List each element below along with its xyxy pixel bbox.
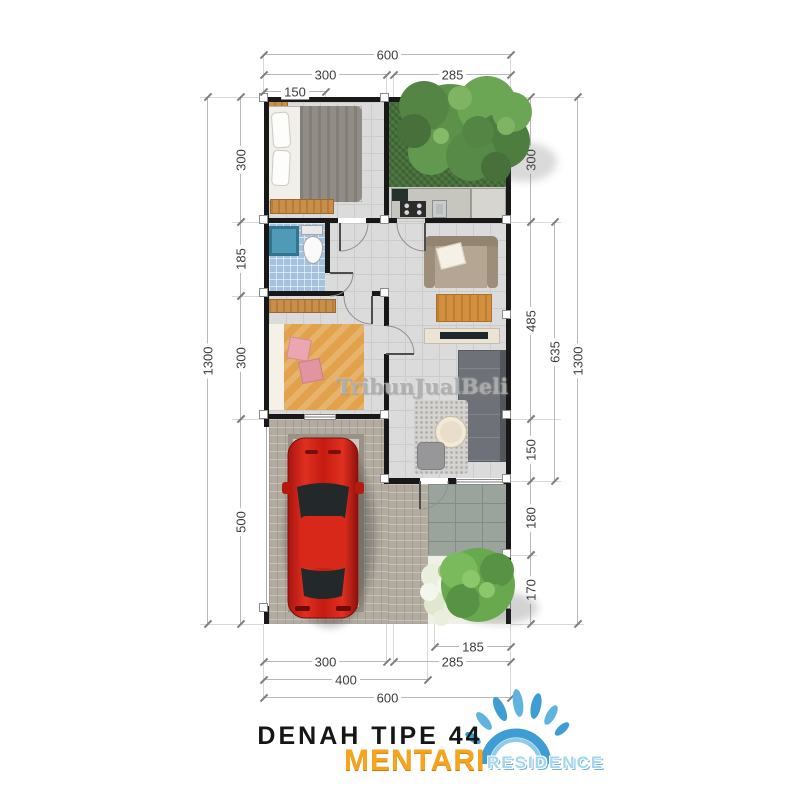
pillow-pink (286, 336, 311, 361)
wall-post (502, 474, 511, 483)
kitchen-sink (432, 200, 447, 218)
wall-post (502, 600, 511, 609)
dim-right-kitchen: 300 (530, 97, 531, 222)
dim-label: 285 (439, 655, 467, 670)
extension-line (393, 624, 394, 661)
cooktop (400, 201, 426, 217)
dim-label: 300 (524, 146, 539, 174)
sofa-arm (424, 246, 435, 288)
extension-line (511, 97, 584, 98)
toilet-tank (301, 225, 323, 235)
dim-left-bedroom2: 300 (240, 296, 241, 419)
dim-label: 185 (459, 640, 487, 655)
accent-chair (417, 442, 445, 470)
dim-top-window: 150 (264, 91, 326, 92)
watermark: TribunJualBeli (336, 374, 508, 399)
dim-label: 1300 (201, 343, 216, 378)
terrace-edge-line (428, 555, 506, 556)
front-window (456, 479, 504, 485)
paving-edge-line (266, 623, 428, 624)
dim-label: 300 (234, 344, 249, 372)
dim-label: 300 (312, 68, 340, 83)
wall-left (264, 97, 269, 427)
dim-label: 150 (524, 436, 539, 464)
terrace-floor (428, 484, 506, 556)
extension-line (200, 97, 264, 98)
wall-post (380, 410, 389, 419)
wall-terrace-top (389, 478, 420, 484)
dim-left-carport: 500 (240, 419, 241, 624)
bed-bench (270, 199, 334, 214)
wall-post (259, 215, 268, 224)
coffee-table (436, 294, 492, 322)
floorplan-poster: TribunJualBeli 600 300 285 150 1300 300 … (0, 0, 800, 800)
dim-label: 635 (548, 338, 563, 366)
wall-post (502, 410, 511, 419)
wall-post (259, 410, 268, 419)
dim-right-overall: 1300 (577, 97, 578, 624)
wall-post (502, 549, 511, 558)
dim-bottom-paving: 400 (264, 679, 428, 680)
brand-name-secondary: RESIDENCE (487, 753, 604, 773)
sofa-arm (487, 246, 498, 288)
wall-bedroom1-right (384, 97, 389, 223)
wall-post (380, 93, 389, 102)
wall-post (380, 288, 389, 297)
dim-label: 485 (524, 307, 539, 335)
dim-label: 185 (234, 245, 249, 273)
dim-top-overall: 600 (264, 54, 511, 55)
extension-line (427, 624, 428, 679)
brand-name-primary: MENTARI (344, 744, 485, 778)
extension-line (511, 624, 584, 625)
extension-line (200, 624, 264, 625)
garden-grass (389, 102, 506, 187)
dim-label: 400 (332, 673, 360, 688)
extension-line (393, 74, 394, 97)
wall-post (502, 93, 511, 102)
dim-top-right: 285 (394, 74, 511, 75)
wall-post (502, 310, 511, 319)
dim-right-living: 485 (530, 222, 531, 419)
wall-bedroom2-right (384, 296, 389, 326)
carport-concrete-pad (288, 434, 364, 612)
wall-post (380, 474, 389, 483)
dim-bottom-yard: 185 (435, 646, 511, 647)
dim-label: 500 (234, 508, 249, 536)
dim-label: 600 (374, 691, 402, 706)
carport-paving-extension (388, 484, 428, 624)
dim-left-bathroom: 185 (240, 222, 241, 296)
wall-kitchen-bottom (425, 218, 506, 223)
front-yard-gravel (428, 556, 506, 624)
extension-line (386, 624, 387, 661)
dim-left-bedroom1: 300 (240, 97, 241, 222)
wall-bedroom2-bottom (336, 414, 384, 419)
wall-post (502, 215, 511, 224)
dim-left-overall: 1300 (207, 97, 208, 624)
wall-bedroom2-bottom (264, 414, 304, 419)
wall-kitchen-bottom (389, 218, 397, 223)
dim-label: 300 (312, 655, 340, 670)
dim-label: 180 (524, 504, 539, 532)
dim-right-sitting: 150 (530, 419, 531, 481)
dim-label: 300 (234, 146, 249, 174)
dim-right-terrace: 180 (530, 481, 531, 555)
dim-label: 1300 (571, 343, 586, 378)
sliding-door-garage (304, 414, 336, 420)
extension-line (511, 555, 537, 556)
dresser (268, 299, 336, 313)
dim-label: 600 (374, 48, 402, 63)
pillow (271, 111, 291, 148)
blanket (300, 106, 362, 202)
paving-edge-line (266, 427, 267, 624)
wall-post (380, 215, 389, 224)
shower-mat (269, 226, 299, 256)
wall-bathroom-right (325, 222, 330, 273)
dim-bottom-right: 285 (394, 661, 511, 662)
dim-label: 285 (439, 68, 467, 83)
bed-sheet (268, 324, 284, 410)
range-hood (392, 189, 408, 201)
counter-top-right (471, 188, 506, 219)
pillow-pink (298, 358, 324, 384)
wall-terrace-top (448, 478, 456, 484)
tv (440, 332, 488, 339)
pillow (271, 150, 291, 187)
wall-post (259, 288, 268, 297)
dim-label: 170 (524, 576, 539, 604)
dim-right-yard: 170 (530, 555, 531, 624)
dim-right-mid: 635 (554, 222, 555, 481)
dim-top-left: 300 (264, 74, 387, 75)
dim-bottom-carport: 300 (264, 661, 387, 662)
wall-bathroom-bottom (264, 291, 344, 296)
dim-label: 150 (281, 85, 309, 100)
wall-right (506, 97, 511, 624)
dim-bottom-overall: 600 (264, 697, 511, 698)
extension-line (434, 624, 435, 646)
wall-post (259, 603, 268, 612)
